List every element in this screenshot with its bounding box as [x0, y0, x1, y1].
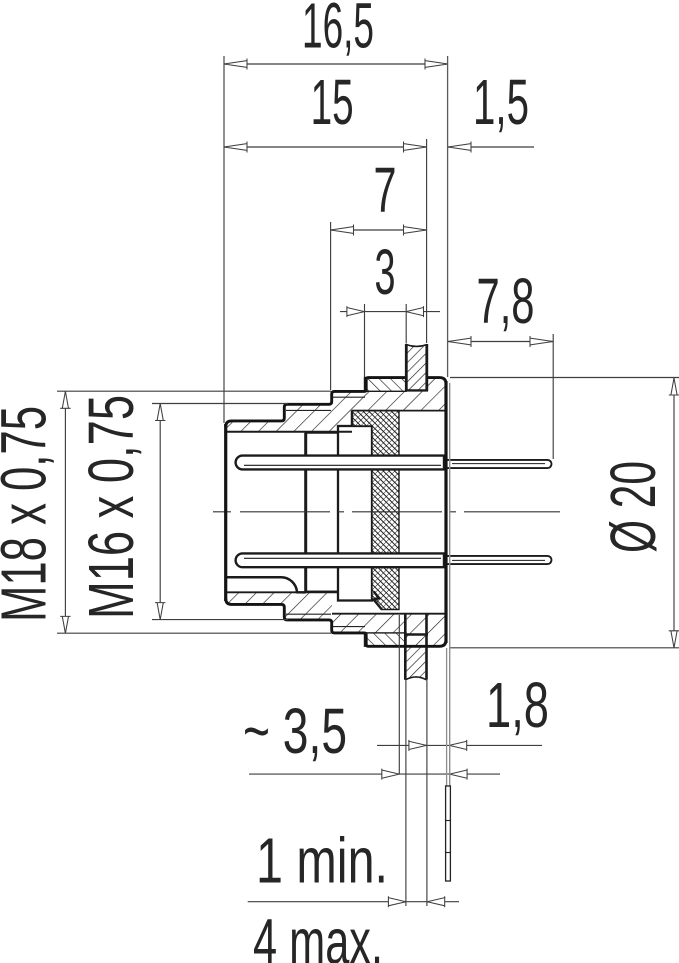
svg-text:15: 15 — [311, 66, 354, 138]
svg-text:1 min.: 1 min. — [256, 825, 388, 897]
svg-text:7,8: 7,8 — [477, 265, 535, 337]
svg-text:1,5: 1,5 — [473, 66, 529, 138]
svg-text:M18 x 0,75: M18 x 0,75 — [0, 406, 60, 622]
svg-text:~ 3,5: ~ 3,5 — [243, 695, 347, 767]
svg-text:16,5: 16,5 — [302, 0, 374, 62]
svg-text:3: 3 — [375, 236, 396, 308]
svg-text:7: 7 — [374, 154, 397, 226]
svg-text:Ø 20: Ø 20 — [597, 461, 669, 553]
svg-text:4 max.: 4 max. — [253, 906, 383, 963]
svg-text:M16 x 0,75: M16 x 0,75 — [75, 395, 147, 619]
svg-text:1,8: 1,8 — [486, 669, 549, 741]
